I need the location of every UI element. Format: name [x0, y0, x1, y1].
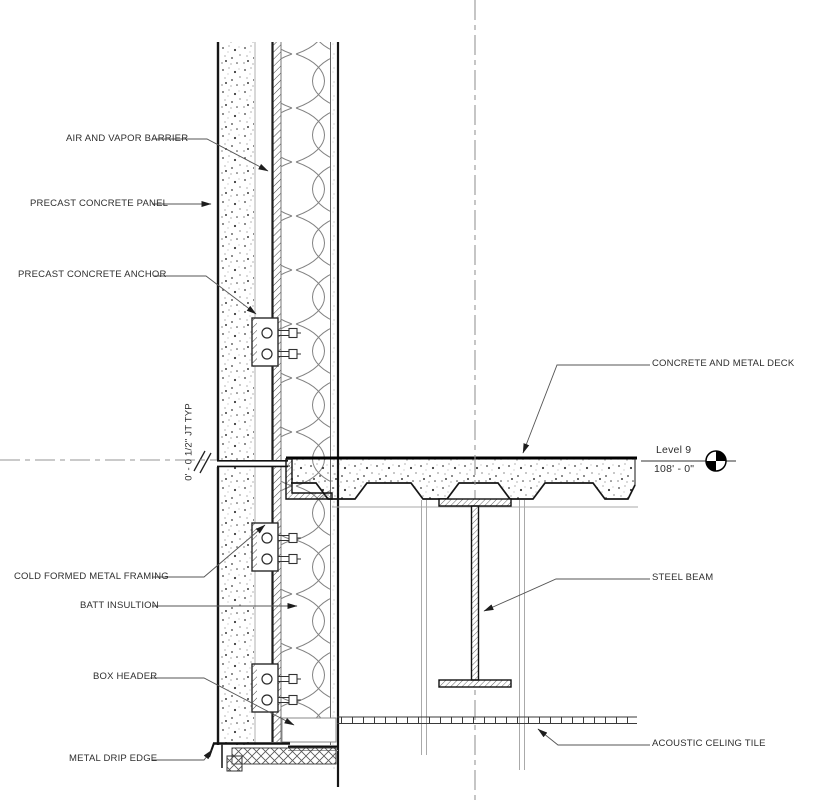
label-air-vapor-barrier: AIR AND VAPOR BARRIER [66, 133, 188, 144]
air-vapor-barrier-and-sheathing [273, 42, 282, 742]
label-metal-drip-edge: METAL DRIP EDGE [69, 753, 157, 764]
leader-drip-edge [152, 750, 212, 760]
label-acoustic-ceiling: ACOUSTIC CELING TILE [652, 738, 766, 749]
panel-joint [216, 460, 289, 467]
label-level-name: Level 9 [656, 444, 691, 456]
label-joint-typ: 0' - 0 1/2" JT TYP [184, 403, 195, 481]
shim-strip [227, 748, 336, 771]
leader-steel-beam [484, 579, 650, 611]
label-box-header: BOX HEADER [93, 671, 157, 682]
label-concrete-metal-deck: CONCRETE AND METAL DECK [652, 358, 794, 369]
label-steel-beam: STEEL BEAM [652, 572, 713, 583]
label-level-elevation: 108' - 0" [654, 463, 694, 475]
steel-beam [439, 499, 511, 687]
joint-break-mark [194, 451, 211, 473]
box-header [282, 718, 336, 742]
level-datum-symbol [706, 451, 726, 471]
acoustic-ceiling-tile [337, 717, 637, 724]
label-cold-formed-framing: COLD FORMED METAL FRAMING [14, 571, 169, 582]
label-precast-panel: PRECAST CONCRETE PANEL [30, 198, 168, 209]
label-batt-insulation: BATT INSULTION [80, 600, 159, 611]
detail-drawing-canvas: AIR AND VAPOR BARRIER PRECAST CONCRETE P… [0, 0, 818, 803]
cad-linework [0, 0, 818, 803]
leader-deck [523, 365, 650, 453]
interior-finish [331, 42, 339, 787]
label-precast-anchor: PRECAST CONCRETE ANCHOR [18, 269, 167, 280]
batt-insulation [281, 42, 330, 718]
leader-ceiling-tile [538, 729, 650, 745]
